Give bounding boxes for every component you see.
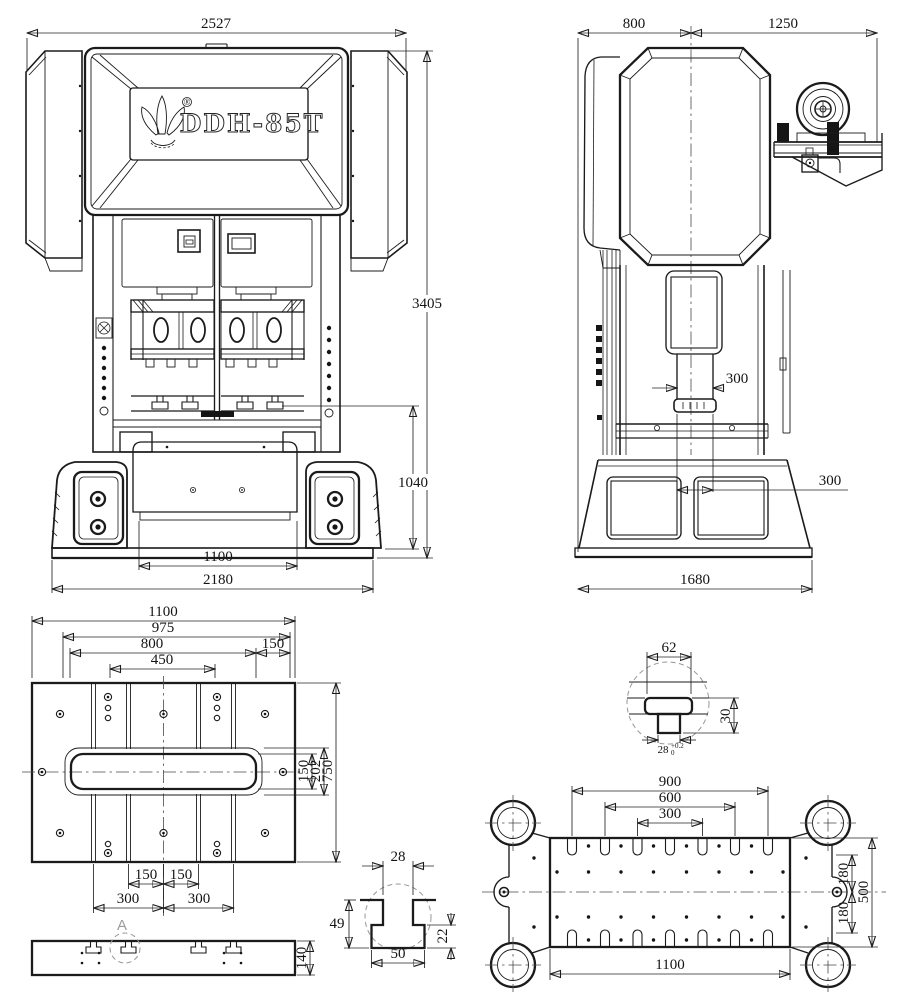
section-detail-label: A [117,917,127,934]
side-base [575,460,812,557]
side-view: 800 1250 [575,16,882,593]
tslot-detail-view: 28 49 22 50 [326,849,456,968]
dim-pitch-150b: 150 [170,867,193,883]
front-right-wing [351,51,407,271]
dim-front-overall-width: 2527 [201,16,232,32]
front-upper-panels [122,219,312,287]
dim-side-depth-front: 1250 [768,16,798,32]
dim-tslot-neck: 28 [391,849,406,865]
perforated-panel [666,271,722,354]
drive-bracket [774,122,882,186]
dim-tnut-tol-lower: 0 [671,749,675,757]
dim-front-table-height: 1040 [398,475,428,491]
dim-tnut-neck: 28 [658,744,670,756]
dim-bolster-depth: 750 [320,760,336,783]
slide-body [494,833,847,953]
drawing-canvas: 2527 3405 1040 1100 2180 ® DDH-85T [0,0,900,992]
dim-slide-180a: 180 [836,863,852,886]
side-crown-cover [620,48,770,265]
dim-pitch-300b: 300 [188,891,211,907]
bolster-section-strip [32,933,295,975]
dim-slide-600: 600 [659,790,682,806]
side-ram [674,354,716,412]
dim-bolster-width: 1100 [148,604,177,620]
dim-slide-width: 1100 [655,957,684,973]
dim-slide-300: 300 [659,806,682,822]
dim-bolster-450: 450 [151,652,174,668]
technical-drawing-sheet: 2527 3405 1040 1100 2180 ® DDH-85T [0,0,900,992]
front-left-foot [52,462,127,548]
dim-side-ram: 300 [726,371,749,387]
right-control-strip [325,326,333,417]
dim-slide-500: 500 [856,881,872,904]
dim-bolster-975: 975 [152,620,175,636]
left-control-strip [96,318,112,415]
dim-bolster-thickness: 140 [294,947,310,970]
dim-slide-900: 900 [659,774,682,790]
dim-front-base-width: 2180 [203,572,233,588]
dim-tslot-cavity: 22 [435,929,451,944]
flywheel [797,83,849,135]
dim-bolster-800: 800 [141,636,164,652]
tnut-detail-view: 62 30 28 +0.2 0 [627,640,739,757]
dim-slide-180b: 180 [836,902,852,925]
slide-bottom-view: 900 600 300 180 180 500 1100 [482,774,886,992]
front-view: 2527 3405 1040 1100 2180 ® DDH-85T [26,16,447,593]
side-table [616,424,768,438]
registered-mark: ® [184,97,191,107]
dim-side-depth-rear: 800 [623,16,646,32]
dim-side-base-depth: 1680 [680,572,710,588]
dim-pitch-300a: 300 [117,891,140,907]
dim-bolster-150: 150 [262,636,285,652]
dim-side-ram-offset: 300 [819,473,842,489]
front-right-foot [306,462,381,548]
slide-tslot-notches [568,838,773,947]
front-bolster-ledge [113,396,321,452]
slide-hole-grid [532,844,807,941]
bolster-top-view: 1100 975 800 150 450 150 202 7 [22,604,341,975]
front-left-wing [26,51,82,271]
dim-tslot-depth: 49 [330,916,345,932]
bolster-holes [38,693,286,856]
side-front-cover-edge [584,57,620,268]
dim-tslot-width: 50 [391,946,406,962]
dim-front-overall-height: 3405 [412,296,442,312]
dim-pitch-150a: 150 [135,867,158,883]
model-label: DDH-85T [180,109,325,138]
dim-tnut-height: 30 [718,709,734,724]
dim-tnut-width: 62 [662,640,677,656]
front-ram-assembly [131,287,304,367]
